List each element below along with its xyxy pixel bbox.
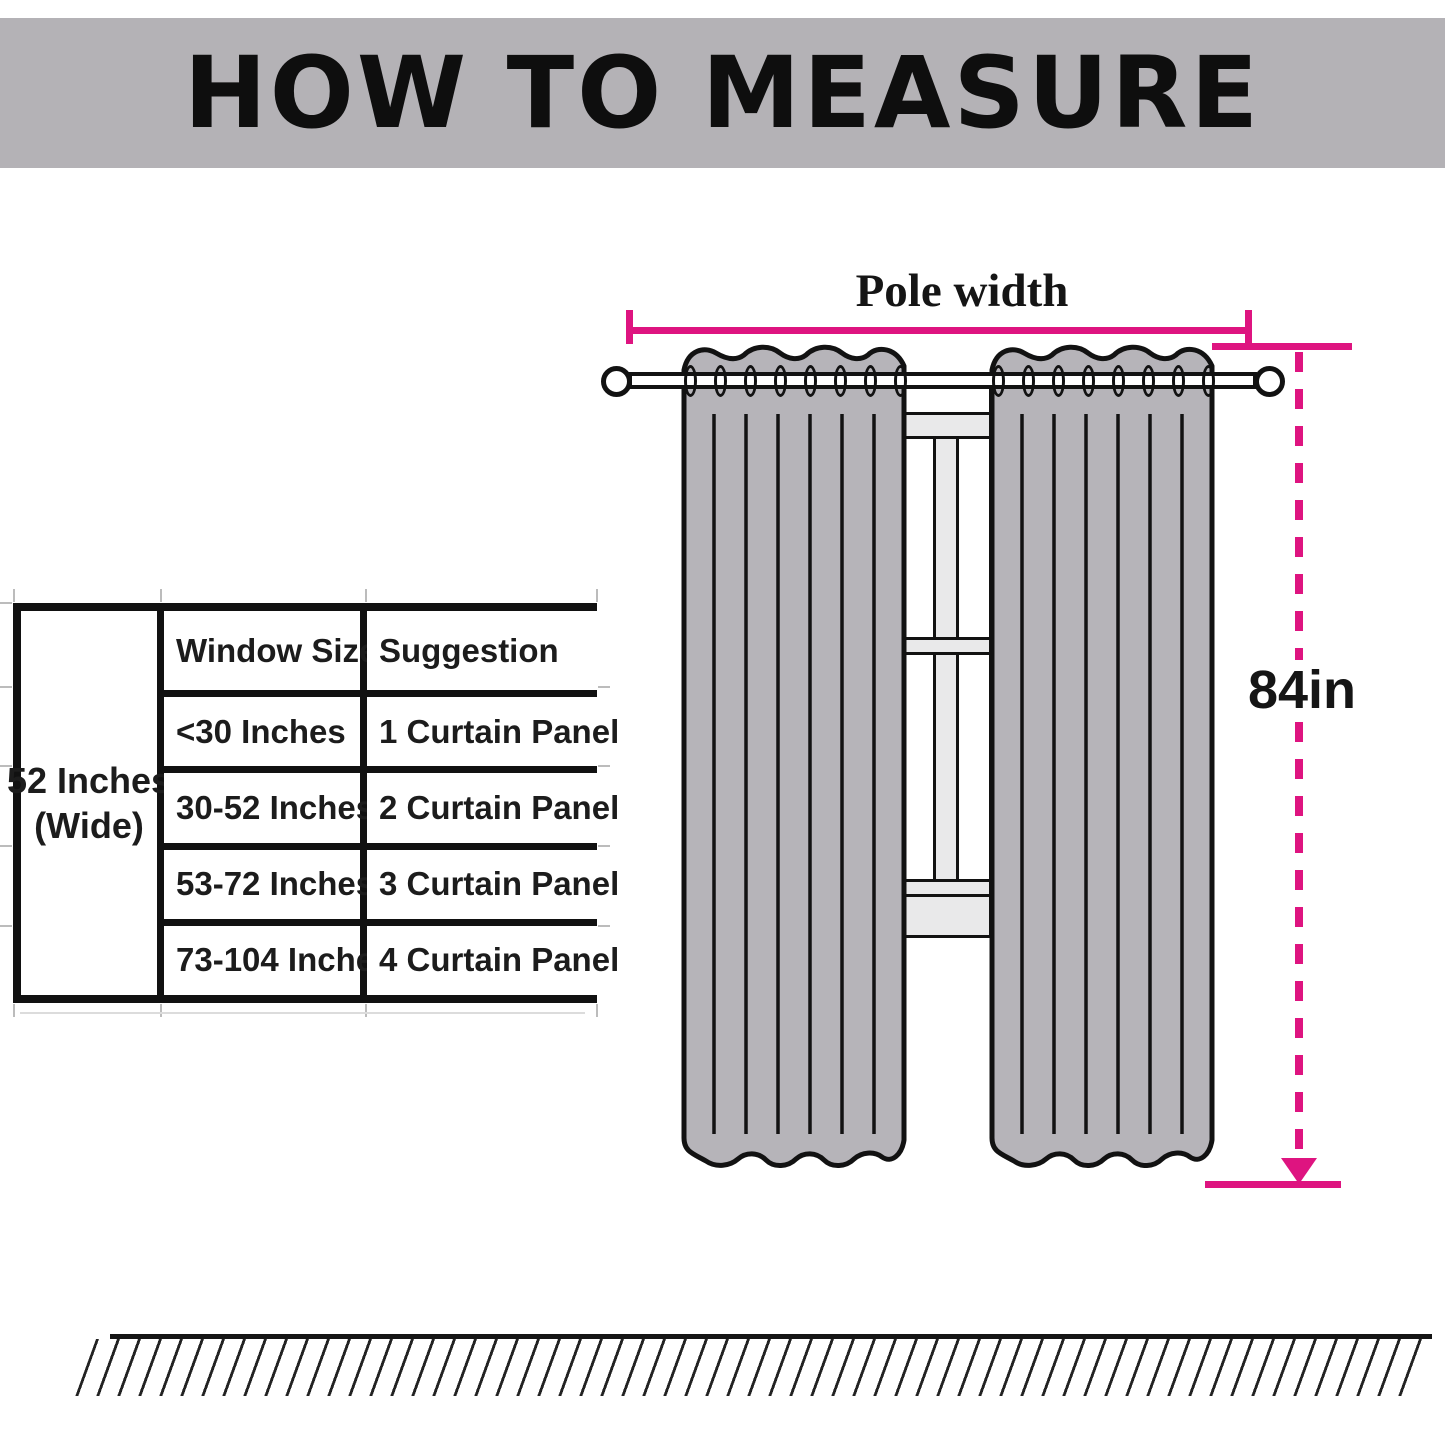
height-ref-line-bottom	[1205, 1181, 1341, 1188]
window-lower-frame	[906, 882, 989, 894]
grommet-ring-icon	[1022, 365, 1035, 397]
grommet-ring-icon	[1142, 365, 1155, 397]
grommet-ring-icon	[864, 365, 877, 397]
grommet-ring-icon	[774, 365, 787, 397]
grommet-ring-icon	[1082, 365, 1095, 397]
pole-width-tick-right	[1245, 310, 1252, 344]
panel-width-cell: 52 Inches (Wide)	[21, 611, 157, 995]
page-title: HOW TO MEASURE	[184, 36, 1261, 151]
table-cell-suggestion: 2 Curtain Panel	[367, 773, 619, 842]
window-sill	[906, 897, 989, 935]
rod-finial-right-icon	[1254, 366, 1285, 397]
grommet-ring-icon	[714, 365, 727, 397]
gridline-stub	[596, 589, 598, 602]
header-band: HOW TO MEASURE	[0, 18, 1445, 168]
table-cell-size: 73-104 Inches	[164, 926, 360, 995]
gridline-stub	[0, 686, 12, 688]
floor-line	[110, 1334, 1432, 1339]
curtain-panel-left	[680, 342, 908, 1187]
grommet-ring-icon	[684, 365, 697, 397]
grommet-ring-icon	[804, 365, 817, 397]
gridline-stub	[598, 765, 610, 767]
height-label: 84in	[1236, 660, 1368, 720]
grommet-ring-icon	[834, 365, 847, 397]
window-panes	[906, 439, 989, 879]
panel-width-line2: (Wide)	[34, 803, 144, 848]
window-frame-line	[906, 935, 989, 938]
window-top-frame	[906, 415, 989, 436]
floor-hatching	[75, 1339, 1426, 1396]
grommet-ring-icon	[1172, 365, 1185, 397]
gridline-stub	[365, 589, 367, 602]
panel-width-line1: 52 Inches	[7, 758, 171, 803]
gridline-stub	[20, 1012, 585, 1014]
grommet-ring-icon	[894, 365, 907, 397]
window-mullion	[933, 439, 959, 879]
table-cell-suggestion: 3 Curtain Panel	[367, 850, 619, 919]
gridline-stub	[0, 765, 12, 767]
gridline-stub	[598, 686, 610, 688]
table-cell-suggestion: 1 Curtain Panel	[367, 697, 619, 766]
window	[903, 387, 992, 938]
table-cell-size: 30-52 Inches	[164, 773, 360, 842]
column-header-window-size: Window Size	[164, 611, 360, 690]
grommet-ring-icon	[744, 365, 757, 397]
window-transom	[906, 637, 989, 655]
gridline-stub	[365, 1004, 367, 1017]
gridline-stub	[598, 845, 610, 847]
grommet-ring-icon	[992, 365, 1005, 397]
gridline-stub	[160, 589, 162, 602]
table-cell-size: <30 Inches	[164, 697, 360, 766]
gridline-stub	[0, 925, 12, 927]
window-header	[906, 387, 989, 412]
grommet-ring-icon	[1202, 365, 1215, 397]
gridline-stub	[0, 845, 12, 847]
height-dimension-dashed-line	[1295, 352, 1303, 1158]
rod-finial-left-icon	[601, 366, 632, 397]
pole-width-label: Pole width	[832, 264, 1092, 318]
gridline-stub	[0, 602, 12, 604]
gridline-stub	[13, 589, 15, 602]
gridline-stub	[160, 1004, 162, 1017]
gridline-stub	[598, 925, 610, 927]
table-cell-suggestion: 4 Curtain Panel	[367, 926, 619, 995]
size-suggestion-table: 52 Inches (Wide) Window Size Suggestion …	[13, 603, 597, 1003]
gridline-stub	[13, 1004, 15, 1017]
height-ref-line-top	[1212, 343, 1352, 350]
curtain-panel-right	[988, 342, 1216, 1187]
grommet-ring-icon	[1112, 365, 1125, 397]
pole-width-line	[629, 327, 1248, 334]
how-to-measure-infographic: HOW TO MEASURE 52 Inches (Wide) Window S…	[0, 0, 1445, 1445]
grommet-ring-icon	[1052, 365, 1065, 397]
pole-width-tick-left	[626, 310, 633, 344]
table-cell-size: 53-72 Inches	[164, 850, 360, 919]
column-header-suggestion: Suggestion	[367, 611, 619, 690]
gridline-stub	[596, 1004, 598, 1017]
